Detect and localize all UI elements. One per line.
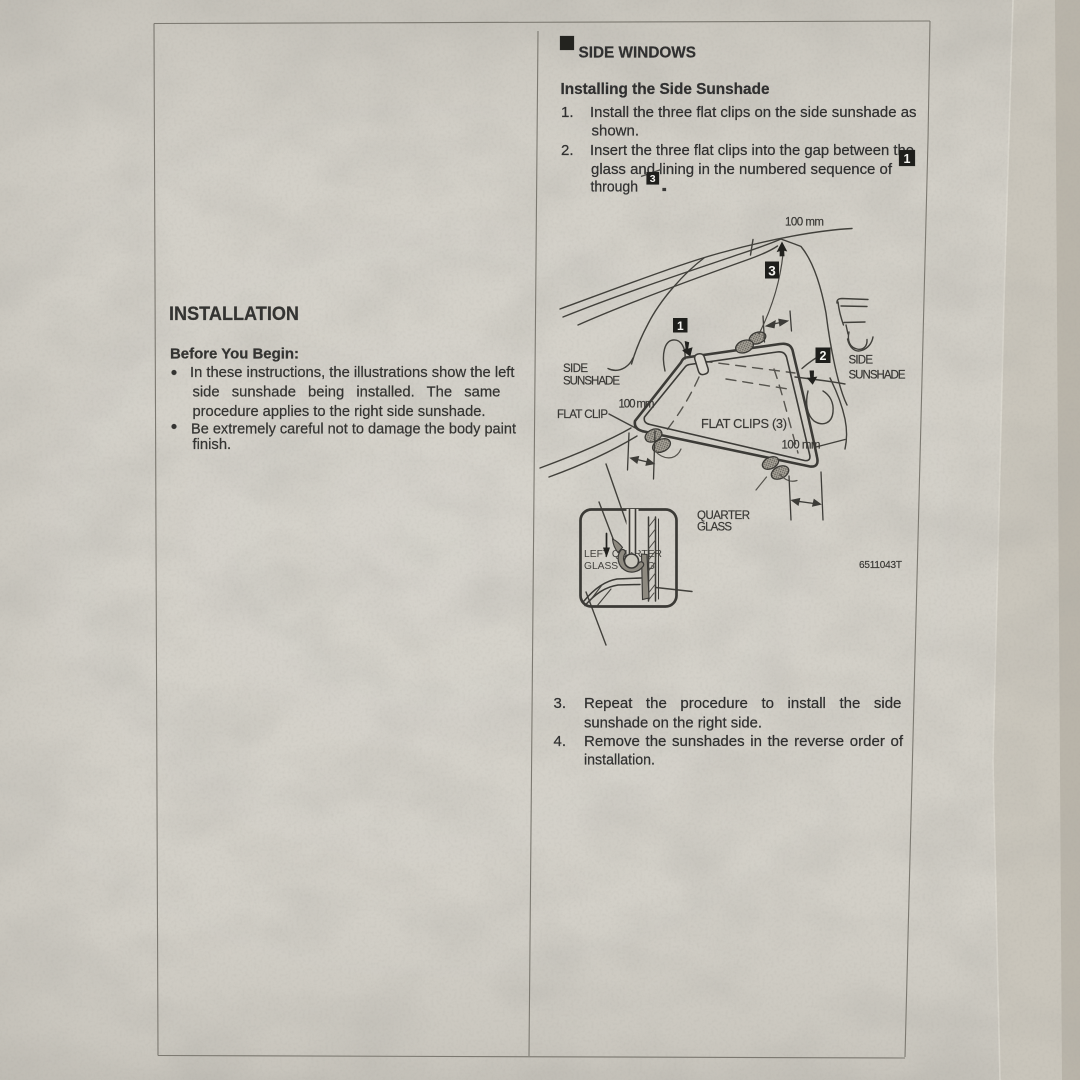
svg-text:glass and lining in the number: glass and lining in the numbered sequenc… bbox=[591, 161, 893, 178]
svg-text:SIDE: SIDE bbox=[849, 355, 874, 367]
svg-text:INSTALLATION: INSTALLATION bbox=[169, 304, 299, 325]
svg-text:Be extremely careful not to da: Be extremely careful not to damage the b… bbox=[191, 422, 516, 438]
svg-text:SIDE WINDOWS: SIDE WINDOWS bbox=[579, 45, 697, 62]
svg-text:finish.: finish. bbox=[193, 437, 232, 453]
svg-text:SUNSHADE: SUNSHADE bbox=[849, 370, 906, 382]
svg-text:sunshade on the right side.: sunshade on the right side. bbox=[584, 715, 762, 732]
svg-text:SIDE: SIDE bbox=[563, 363, 588, 375]
svg-text:installation.: installation. bbox=[584, 752, 655, 769]
svg-text:2: 2 bbox=[820, 349, 827, 363]
svg-text:1: 1 bbox=[904, 152, 911, 166]
svg-text:Install the three flat clips o: Install the three flat clips on the side… bbox=[590, 104, 917, 121]
svg-text:100 mm: 100 mm bbox=[785, 217, 824, 229]
svg-text:2.: 2. bbox=[561, 142, 574, 159]
svg-text:In these instructions, the ill: In these instructions, the illustrations… bbox=[190, 365, 515, 381]
svg-text:3: 3 bbox=[650, 173, 656, 185]
svg-text:100 mm: 100 mm bbox=[782, 440, 821, 452]
svg-text:side sunshade being installed.: side sunshade being installed. The same bbox=[193, 385, 501, 401]
svg-text:100 mm: 100 mm bbox=[619, 399, 655, 411]
svg-text:3: 3 bbox=[768, 264, 776, 279]
svg-text:GLASS: GLASS bbox=[697, 522, 732, 534]
svg-text:FLAT CLIP: FLAT CLIP bbox=[557, 409, 608, 421]
svg-text:SUNSHADE: SUNSHADE bbox=[563, 376, 620, 388]
svg-text:Before You Begin:: Before You Begin: bbox=[170, 345, 299, 362]
svg-text:shown.: shown. bbox=[592, 123, 640, 140]
svg-text:Insert the three flat clips in: Insert the three flat clips into the gap… bbox=[590, 142, 914, 159]
svg-text:4.: 4. bbox=[554, 733, 567, 750]
svg-text:3.: 3. bbox=[554, 695, 567, 712]
svg-text:procedure applies to the right: procedure applies to the right side suns… bbox=[193, 404, 486, 420]
svg-text:1.: 1. bbox=[561, 104, 574, 121]
svg-text:through: through bbox=[591, 179, 639, 196]
svg-text:FLAT CLIPS (3): FLAT CLIPS (3) bbox=[701, 416, 787, 431]
svg-text:Remove the sunshades in the re: Remove the sunshades in the reverse orde… bbox=[584, 733, 904, 750]
svg-text:Installing the Side Sunshade: Installing the Side Sunshade bbox=[561, 81, 770, 98]
svg-text:6511043T: 6511043T bbox=[859, 560, 902, 571]
svg-text:QUARTER: QUARTER bbox=[697, 510, 750, 522]
svg-text:1: 1 bbox=[677, 319, 684, 333]
svg-text:Repeat the procedure to instal: Repeat the procedure to install the side bbox=[584, 695, 901, 712]
